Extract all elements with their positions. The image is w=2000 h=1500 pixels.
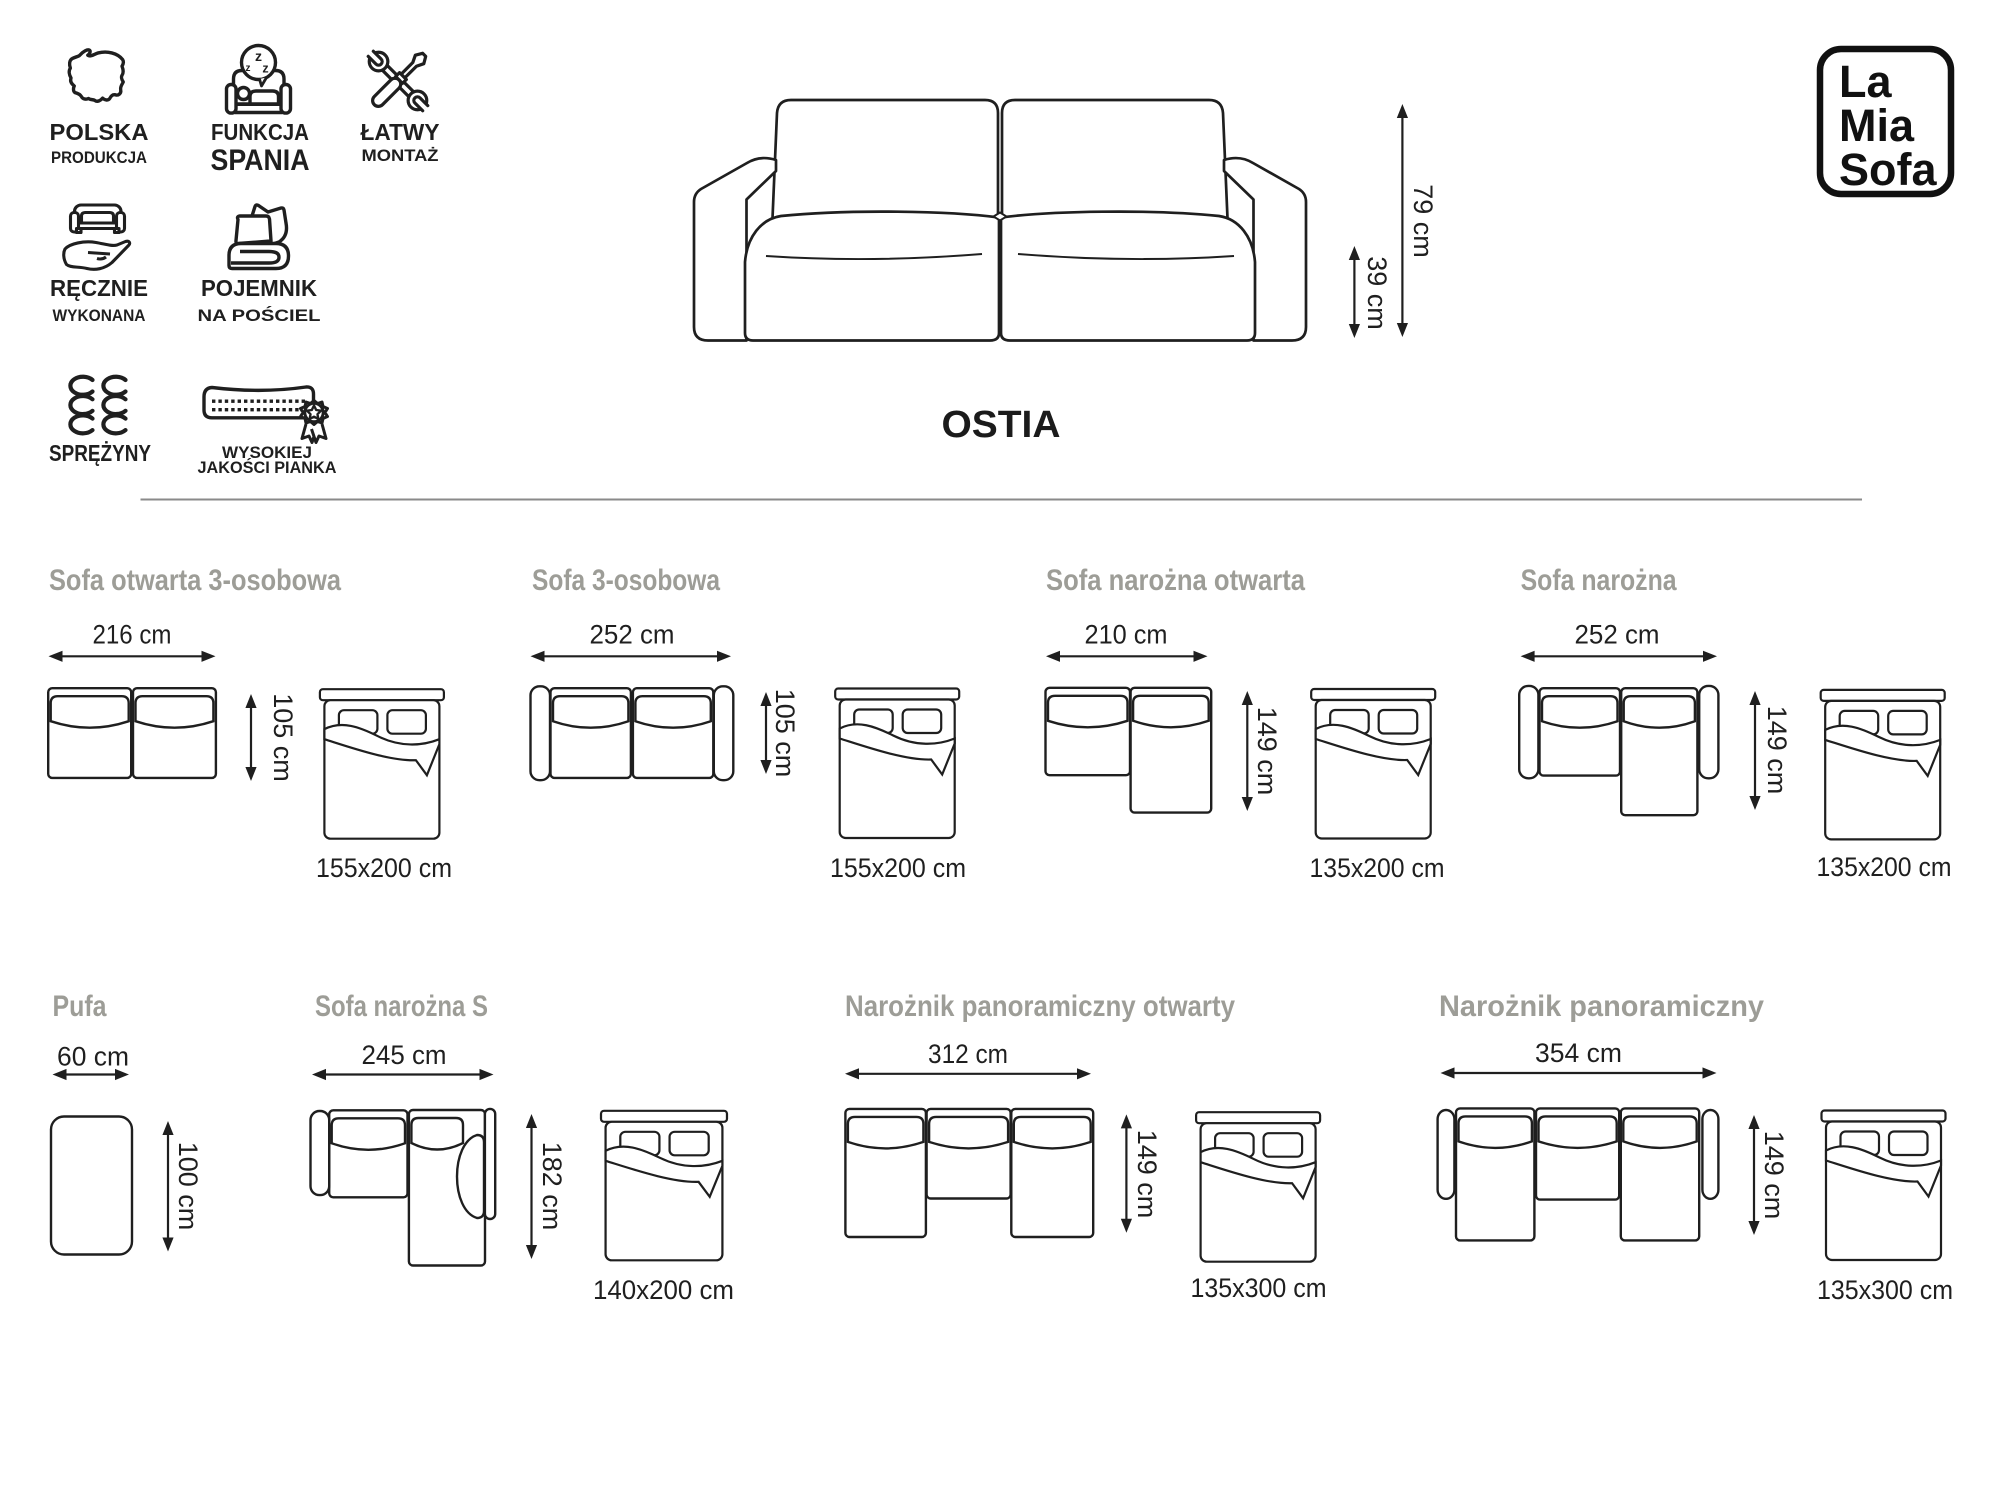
svg-text:60 cm: 60 cm [57,1042,129,1072]
svg-text:245 cm: 245 cm [362,1040,447,1070]
svg-text:Sofa: Sofa [1839,144,1937,195]
svg-text:z: z [255,48,262,64]
svg-text:Narożnik panoramiczny: Narożnik panoramiczny [1439,990,1764,1023]
svg-text:NA POŚCIEL: NA POŚCIEL [198,306,321,325]
svg-text:Sofa narożna: Sofa narożna [1521,564,1677,597]
svg-text:39 cm: 39 cm [1362,256,1392,330]
svg-text:MONTAŻ: MONTAŻ [362,146,439,165]
svg-text:149 cm: 149 cm [1132,1130,1162,1219]
svg-text:216 cm: 216 cm [93,620,172,650]
svg-text:z: z [262,62,268,76]
svg-text:PRODUKCJA: PRODUKCJA [51,148,147,167]
svg-text:ŁATWY: ŁATWY [361,119,440,145]
svg-text:WYKONANA: WYKONANA [53,306,146,325]
svg-text:79 cm: 79 cm [1408,184,1438,258]
svg-text:Pufa: Pufa [53,990,107,1023]
svg-text:SPANIA: SPANIA [211,144,310,177]
svg-text:135x300 cm: 135x300 cm [1817,1275,1953,1305]
svg-text:135x200 cm: 135x200 cm [1310,853,1445,883]
svg-text:149 cm: 149 cm [1759,1131,1789,1220]
svg-text:JAKOŚCI PIANKA: JAKOŚCI PIANKA [198,458,337,477]
svg-text:252 cm: 252 cm [1575,620,1660,650]
svg-text:149 cm: 149 cm [1762,706,1792,795]
svg-text:155x200 cm: 155x200 cm [830,853,966,883]
svg-text:210 cm: 210 cm [1085,620,1168,650]
svg-text:354 cm: 354 cm [1535,1038,1622,1068]
svg-text:312 cm: 312 cm [928,1039,1008,1069]
svg-text:SPRĘŻYNY: SPRĘŻYNY [49,440,151,466]
svg-text:100 cm: 100 cm [173,1142,203,1231]
svg-text:135x300 cm: 135x300 cm [1191,1273,1327,1303]
svg-text:Sofa narożna S: Sofa narożna S [315,990,488,1023]
svg-text:149 cm: 149 cm [1252,707,1282,796]
svg-text:155x200 cm: 155x200 cm [316,853,452,883]
svg-text:252 cm: 252 cm [590,620,675,650]
svg-text:105 cm: 105 cm [770,689,800,778]
svg-text:105 cm: 105 cm [268,693,298,782]
svg-text:POJEMNIK: POJEMNIK [201,275,317,301]
svg-text:FUNKCJA: FUNKCJA [211,119,309,145]
svg-text:Sofa otwarta 3-osobowa: Sofa otwarta 3-osobowa [49,564,341,597]
svg-text:RĘCZNIE: RĘCZNIE [50,275,148,301]
svg-text:Sofa 3-osobowa: Sofa 3-osobowa [532,564,720,597]
svg-text:Sofa narożna otwarta: Sofa narożna otwarta [1046,564,1305,597]
svg-text:135x200 cm: 135x200 cm [1817,852,1952,882]
svg-text:140x200 cm: 140x200 cm [593,1275,734,1305]
svg-text:OSTIA: OSTIA [942,404,1061,446]
svg-text:POLSKA: POLSKA [50,119,149,145]
svg-text:Narożnik panoramiczny otwarty: Narożnik panoramiczny otwarty [845,990,1235,1023]
svg-text:z: z [246,63,251,74]
svg-text:182 cm: 182 cm [537,1142,567,1231]
